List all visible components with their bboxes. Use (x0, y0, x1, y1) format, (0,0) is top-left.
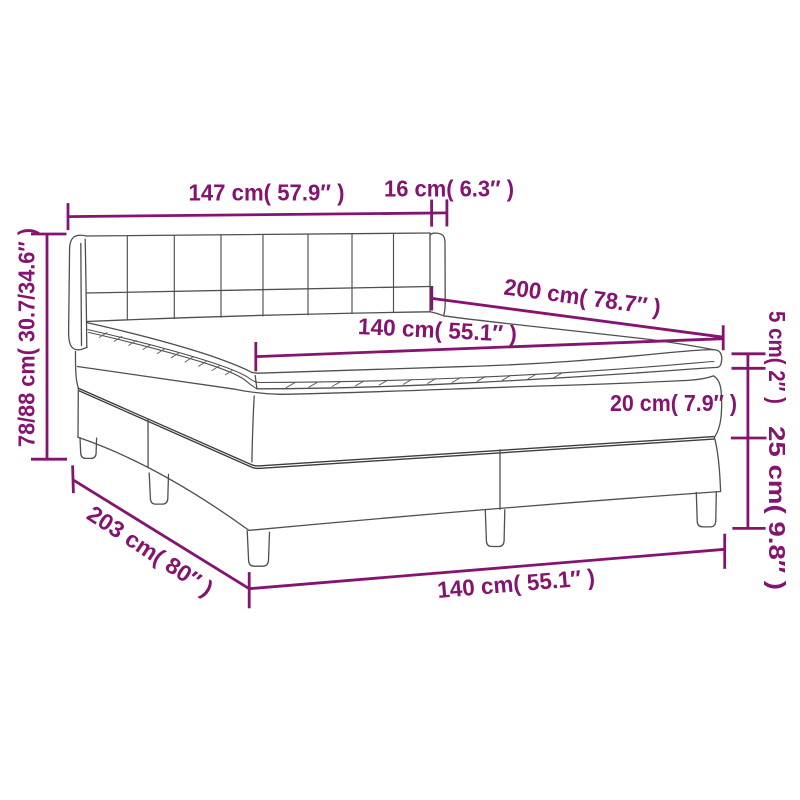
svg-text:147 cm( 57.9″ ): 147 cm( 57.9″ ) (189, 180, 345, 206)
svg-text:16 cm( 6.3″ ): 16 cm( 6.3″ ) (384, 176, 514, 202)
svg-text:25 cm( 9.8″ ): 25 cm( 9.8″ ) (764, 426, 790, 590)
svg-text:20 cm( 7.9″ ): 20 cm( 7.9″ ) (610, 390, 737, 416)
svg-text:5 cm( 2″ ): 5 cm( 2″ ) (764, 311, 790, 404)
svg-text:78/88 cm( 30.7/34.6″ ): 78/88 cm( 30.7/34.6″ ) (13, 228, 39, 447)
